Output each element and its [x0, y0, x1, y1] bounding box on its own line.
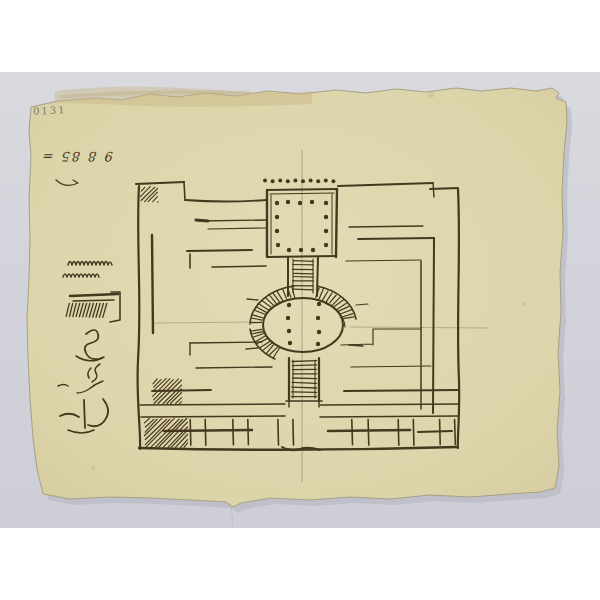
fox-spot [522, 302, 526, 306]
hall-column-dot [299, 248, 303, 252]
portico-column-dot [309, 179, 313, 183]
vestibule-right [336, 189, 337, 257]
portico-column-dot [286, 179, 290, 183]
wall-thick-end [196, 220, 208, 221]
wall-line [344, 390, 459, 391]
fox-spot [91, 466, 96, 471]
rotunda-column-dot [288, 341, 292, 345]
upper-stair-rung [294, 273, 314, 274]
lower-stair-rung [292, 378, 316, 379]
arcade-pier [233, 420, 234, 445]
arcade-pier [455, 420, 456, 445]
upper-stair-rung [294, 289, 314, 290]
arcade-pier [413, 420, 414, 446]
arcade-pier [352, 420, 353, 445]
arcade-sill [164, 430, 252, 431]
arcade-pier [293, 420, 294, 445]
hall-column-dot [275, 229, 279, 233]
portico-column-dot [271, 179, 275, 183]
hall-column-dot [324, 243, 328, 247]
photograph-of-plan-sketch: 0131 9 8 85 = [0, 0, 600, 600]
rotunda-column-dot [316, 316, 320, 320]
rotunda-column-dot [286, 316, 290, 320]
hall-column-dot [275, 215, 279, 219]
hall-column-dot [310, 200, 314, 204]
hall-column-dot [298, 201, 302, 205]
right-wall [458, 189, 459, 448]
lower-stair-rung [292, 392, 317, 393]
lower-stair-rung [292, 365, 316, 366]
portico-column-dot [263, 179, 267, 183]
hall-column-dot [324, 229, 328, 233]
rotunda-column-dot [317, 330, 321, 334]
wall-line [187, 250, 252, 251]
portico-column-dot [278, 179, 282, 183]
wall-line [152, 235, 153, 333]
corner-hatch [158, 202, 159, 203]
vestibule-bottom [267, 256, 336, 257]
rotunda-column-dot [317, 302, 321, 306]
drawing-surface [0, 0, 600, 600]
portico-column-dot [316, 179, 320, 183]
arcade-sill [418, 431, 452, 432]
portico-column-dot [301, 179, 305, 183]
wall-line [212, 266, 266, 267]
wall-line [358, 238, 434, 239]
hall-column-dot [275, 201, 279, 205]
portico-column-dot [293, 179, 297, 183]
upper-stair-rung [293, 277, 313, 278]
rotunda-column-dot [287, 303, 291, 307]
hall-column-dot [324, 201, 328, 205]
wall-line [190, 342, 262, 343]
arcade-pier [440, 420, 441, 445]
lower-stair-rung [292, 361, 317, 362]
hall-column-dot [287, 248, 291, 252]
top-step-left [184, 182, 185, 200]
arcade-pier [190, 420, 191, 446]
arcade-pier [278, 420, 279, 445]
wall-line [152, 390, 211, 391]
arcade-pier [398, 420, 399, 446]
hall-column-dot [286, 200, 290, 204]
upper-stair-rung [294, 261, 314, 262]
rotunda-column-dot [316, 342, 320, 346]
hall-column-dot [311, 248, 315, 252]
wall-stub [246, 348, 258, 349]
top-corner-right [430, 188, 458, 189]
vestibule-top [267, 189, 337, 190]
portico-column-dot [324, 179, 328, 183]
top-step-right [433, 183, 434, 197]
wall-line [433, 238, 434, 413]
lower-stair-rung [292, 387, 317, 388]
section-bar [73, 300, 114, 301]
hall-column-dot [276, 243, 280, 247]
hall-column-dot [324, 215, 328, 219]
arcade-pier [205, 420, 206, 446]
arcade-pier [248, 420, 249, 445]
portico-column-dot [331, 179, 335, 183]
fox-spot [428, 92, 434, 98]
rotunda-column-dot [287, 329, 291, 333]
arcade-pier [368, 420, 369, 446]
